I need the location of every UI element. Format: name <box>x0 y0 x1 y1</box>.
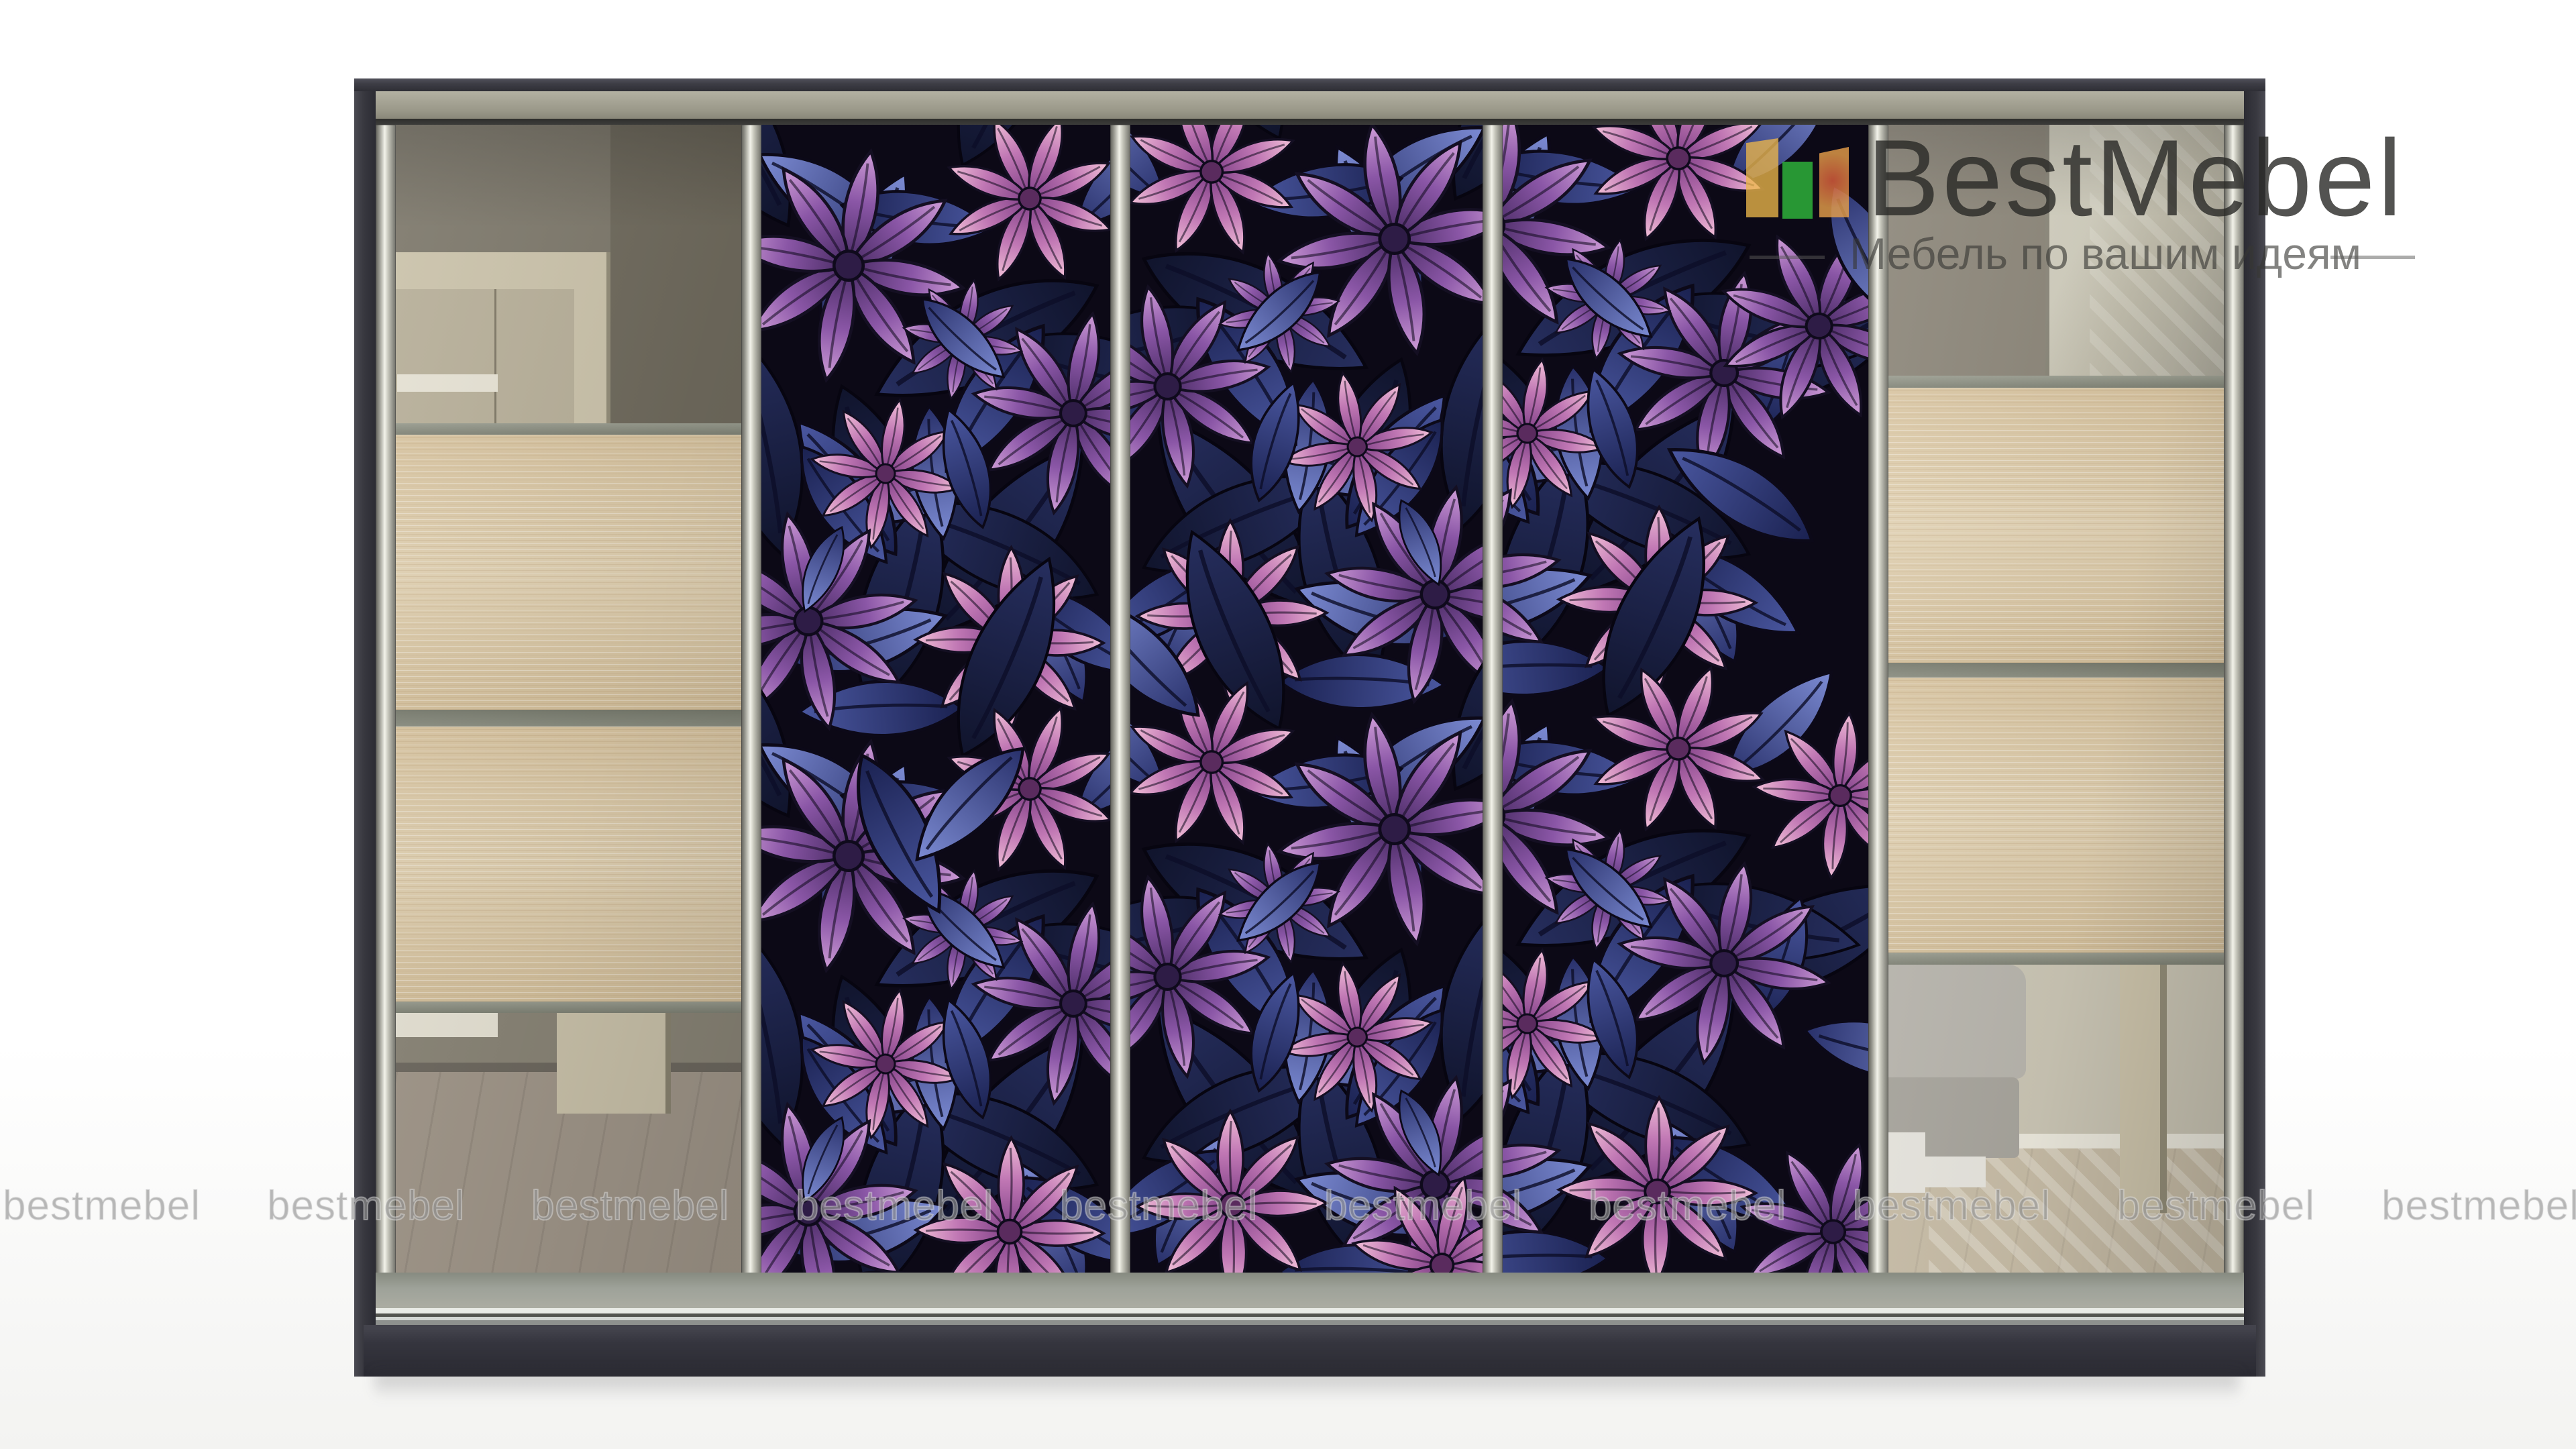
oak-panel-upper <box>396 435 741 710</box>
door-1-mirror <box>396 125 741 1273</box>
watermark: bestmebel <box>531 1182 729 1230</box>
floral-print-panel <box>1130 125 1483 1273</box>
panel-separator <box>1888 953 2224 965</box>
tagline-rule-left <box>1750 256 1825 259</box>
mirror-reflection-floor-area <box>396 1013 741 1273</box>
floral-print-panel <box>1503 125 1868 1273</box>
watermark: bestmebel <box>1060 1182 1258 1230</box>
reflected-door-column <box>2120 965 2167 1213</box>
reflected-white-strip <box>396 1013 498 1037</box>
watermark: bestmebel <box>2117 1182 2315 1230</box>
reflected-door-seam <box>494 289 496 423</box>
panel-separator <box>1888 376 2224 388</box>
oak-panel-upper <box>1888 388 2224 663</box>
reflected-door-pillar <box>557 1013 671 1114</box>
door-stile-chrome <box>376 125 396 1313</box>
logo-orange-bar-icon <box>1819 147 1849 217</box>
mirror-reflection-wall-shadow <box>610 125 741 423</box>
bottom-sliding-track <box>376 1308 2244 1325</box>
reflected-door-frame-side <box>574 252 610 423</box>
panel-separator <box>396 1002 741 1013</box>
door-stile-chrome <box>1868 125 1888 1313</box>
door-4-floral <box>1503 125 1868 1273</box>
wardrobe-top-track <box>376 91 2244 119</box>
floor-shadow <box>374 1373 2239 1399</box>
mirror-reflection-wall <box>396 125 741 423</box>
product-photo-stage: BestMebel Мебель по вашим идеям bestmebe… <box>0 0 2576 1449</box>
door-2-floral <box>761 125 1110 1273</box>
door-stile-chrome <box>1483 125 1503 1313</box>
oak-panel-lower <box>1888 678 2224 953</box>
door-3-floral <box>1130 125 1483 1273</box>
door-stile-chrome <box>1110 125 1130 1313</box>
reflected-door-handle-strip <box>397 374 498 392</box>
watermark: bestmebel <box>1589 1182 1786 1230</box>
watermark: bestmebel <box>1324 1182 1522 1230</box>
tagline-rule-right <box>2330 256 2415 259</box>
watermark: bestmebel <box>3 1182 201 1230</box>
floral-print-panel <box>761 125 1110 1273</box>
watermark: bestmebel <box>2381 1182 2576 1230</box>
panel-gap <box>1888 663 2224 678</box>
panel-separator <box>396 423 741 435</box>
watermark: bestmebel <box>1853 1182 2051 1230</box>
watermark: bestmebel <box>267 1182 465 1230</box>
door-stile-chrome <box>2224 125 2244 1313</box>
wardrobe-top-edge <box>354 78 2265 91</box>
oak-panel-lower <box>396 727 741 1002</box>
door-stile-chrome <box>741 125 761 1313</box>
door-bottom-rail <box>376 1273 2244 1308</box>
brand-title: BestMebel <box>1867 124 2404 233</box>
panel-gap <box>396 710 741 727</box>
door-5-mirror <box>1888 125 2224 1273</box>
watermark: bestmebel <box>796 1182 994 1230</box>
brand-tagline: Мебель по вашим идеям <box>1849 231 2361 276</box>
reflected-armchair-back <box>1888 965 2026 1079</box>
wardrobe-plinth <box>364 1325 2256 1377</box>
logo-yellow-bar-icon <box>1746 138 1778 217</box>
logo-green-bar-icon <box>1782 162 1813 219</box>
reflected-door-slab <box>396 289 574 423</box>
